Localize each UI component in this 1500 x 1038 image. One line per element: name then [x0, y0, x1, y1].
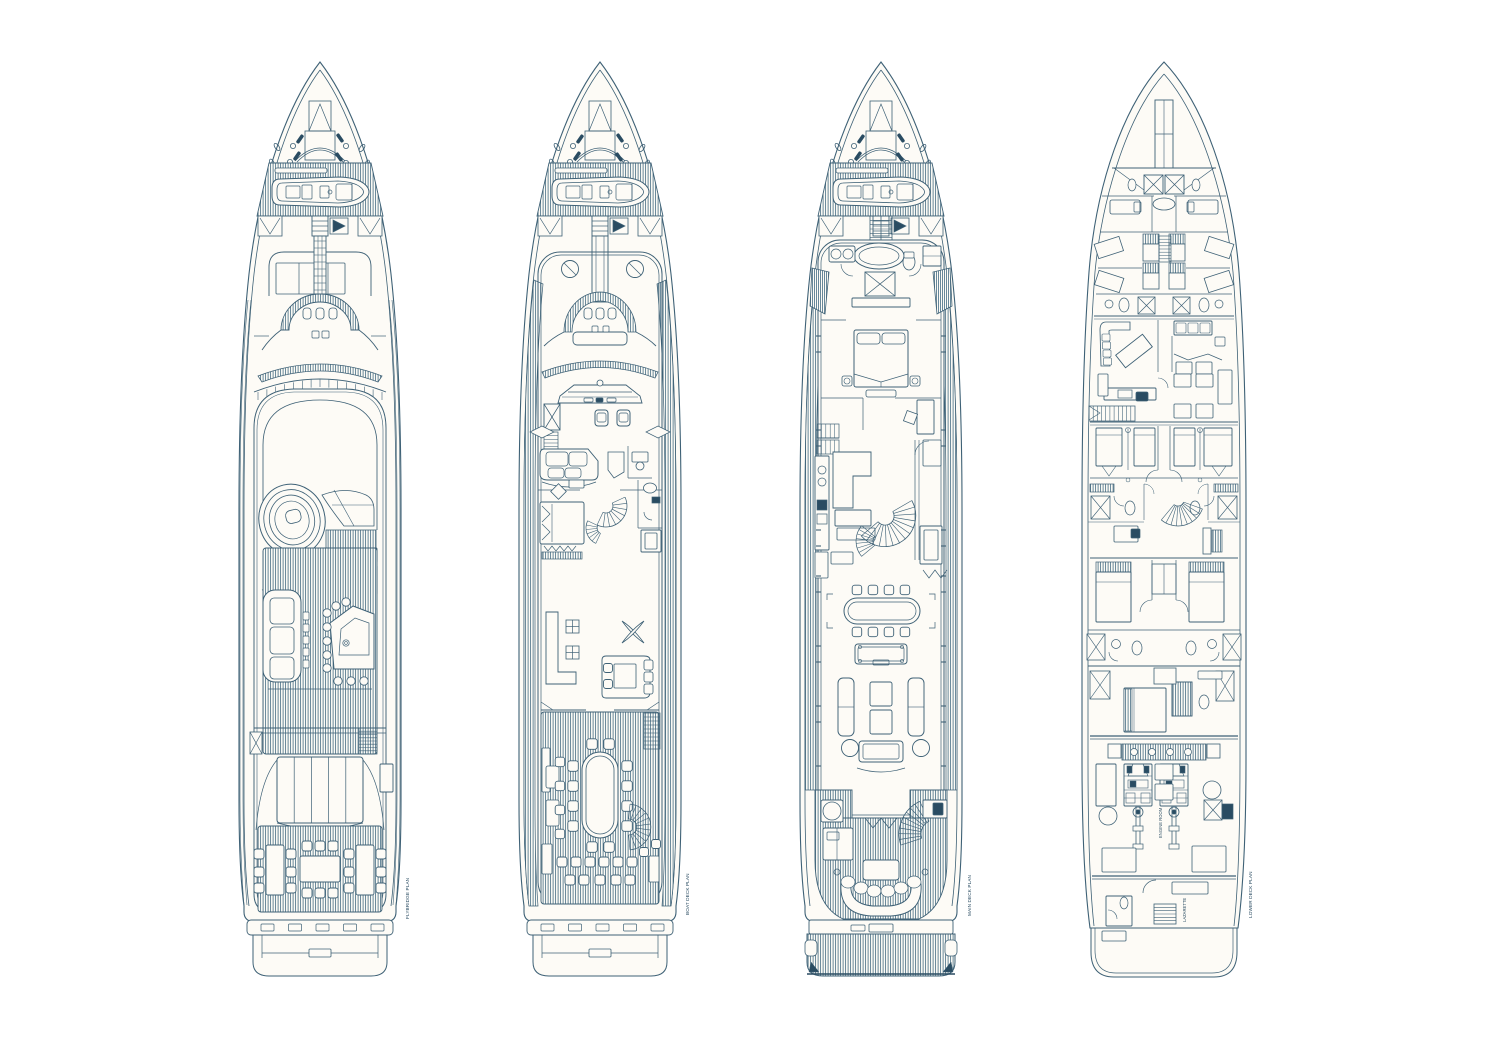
svg-text:ENGINE ROOM: ENGINE ROOM: [1158, 807, 1163, 838]
svg-text:FLYBRIDGE PLAN: FLYBRIDGE PLAN: [405, 878, 410, 919]
svg-text:BOAT DECK PLAN: BOAT DECK PLAN: [685, 873, 690, 915]
svg-text:LAZARETTE: LAZARETTE: [1182, 898, 1187, 922]
svg-text:LOWER DECK PLAN: LOWER DECK PLAN: [1248, 871, 1253, 918]
svg-text:MAIN DECK PLAN: MAIN DECK PLAN: [967, 875, 972, 916]
